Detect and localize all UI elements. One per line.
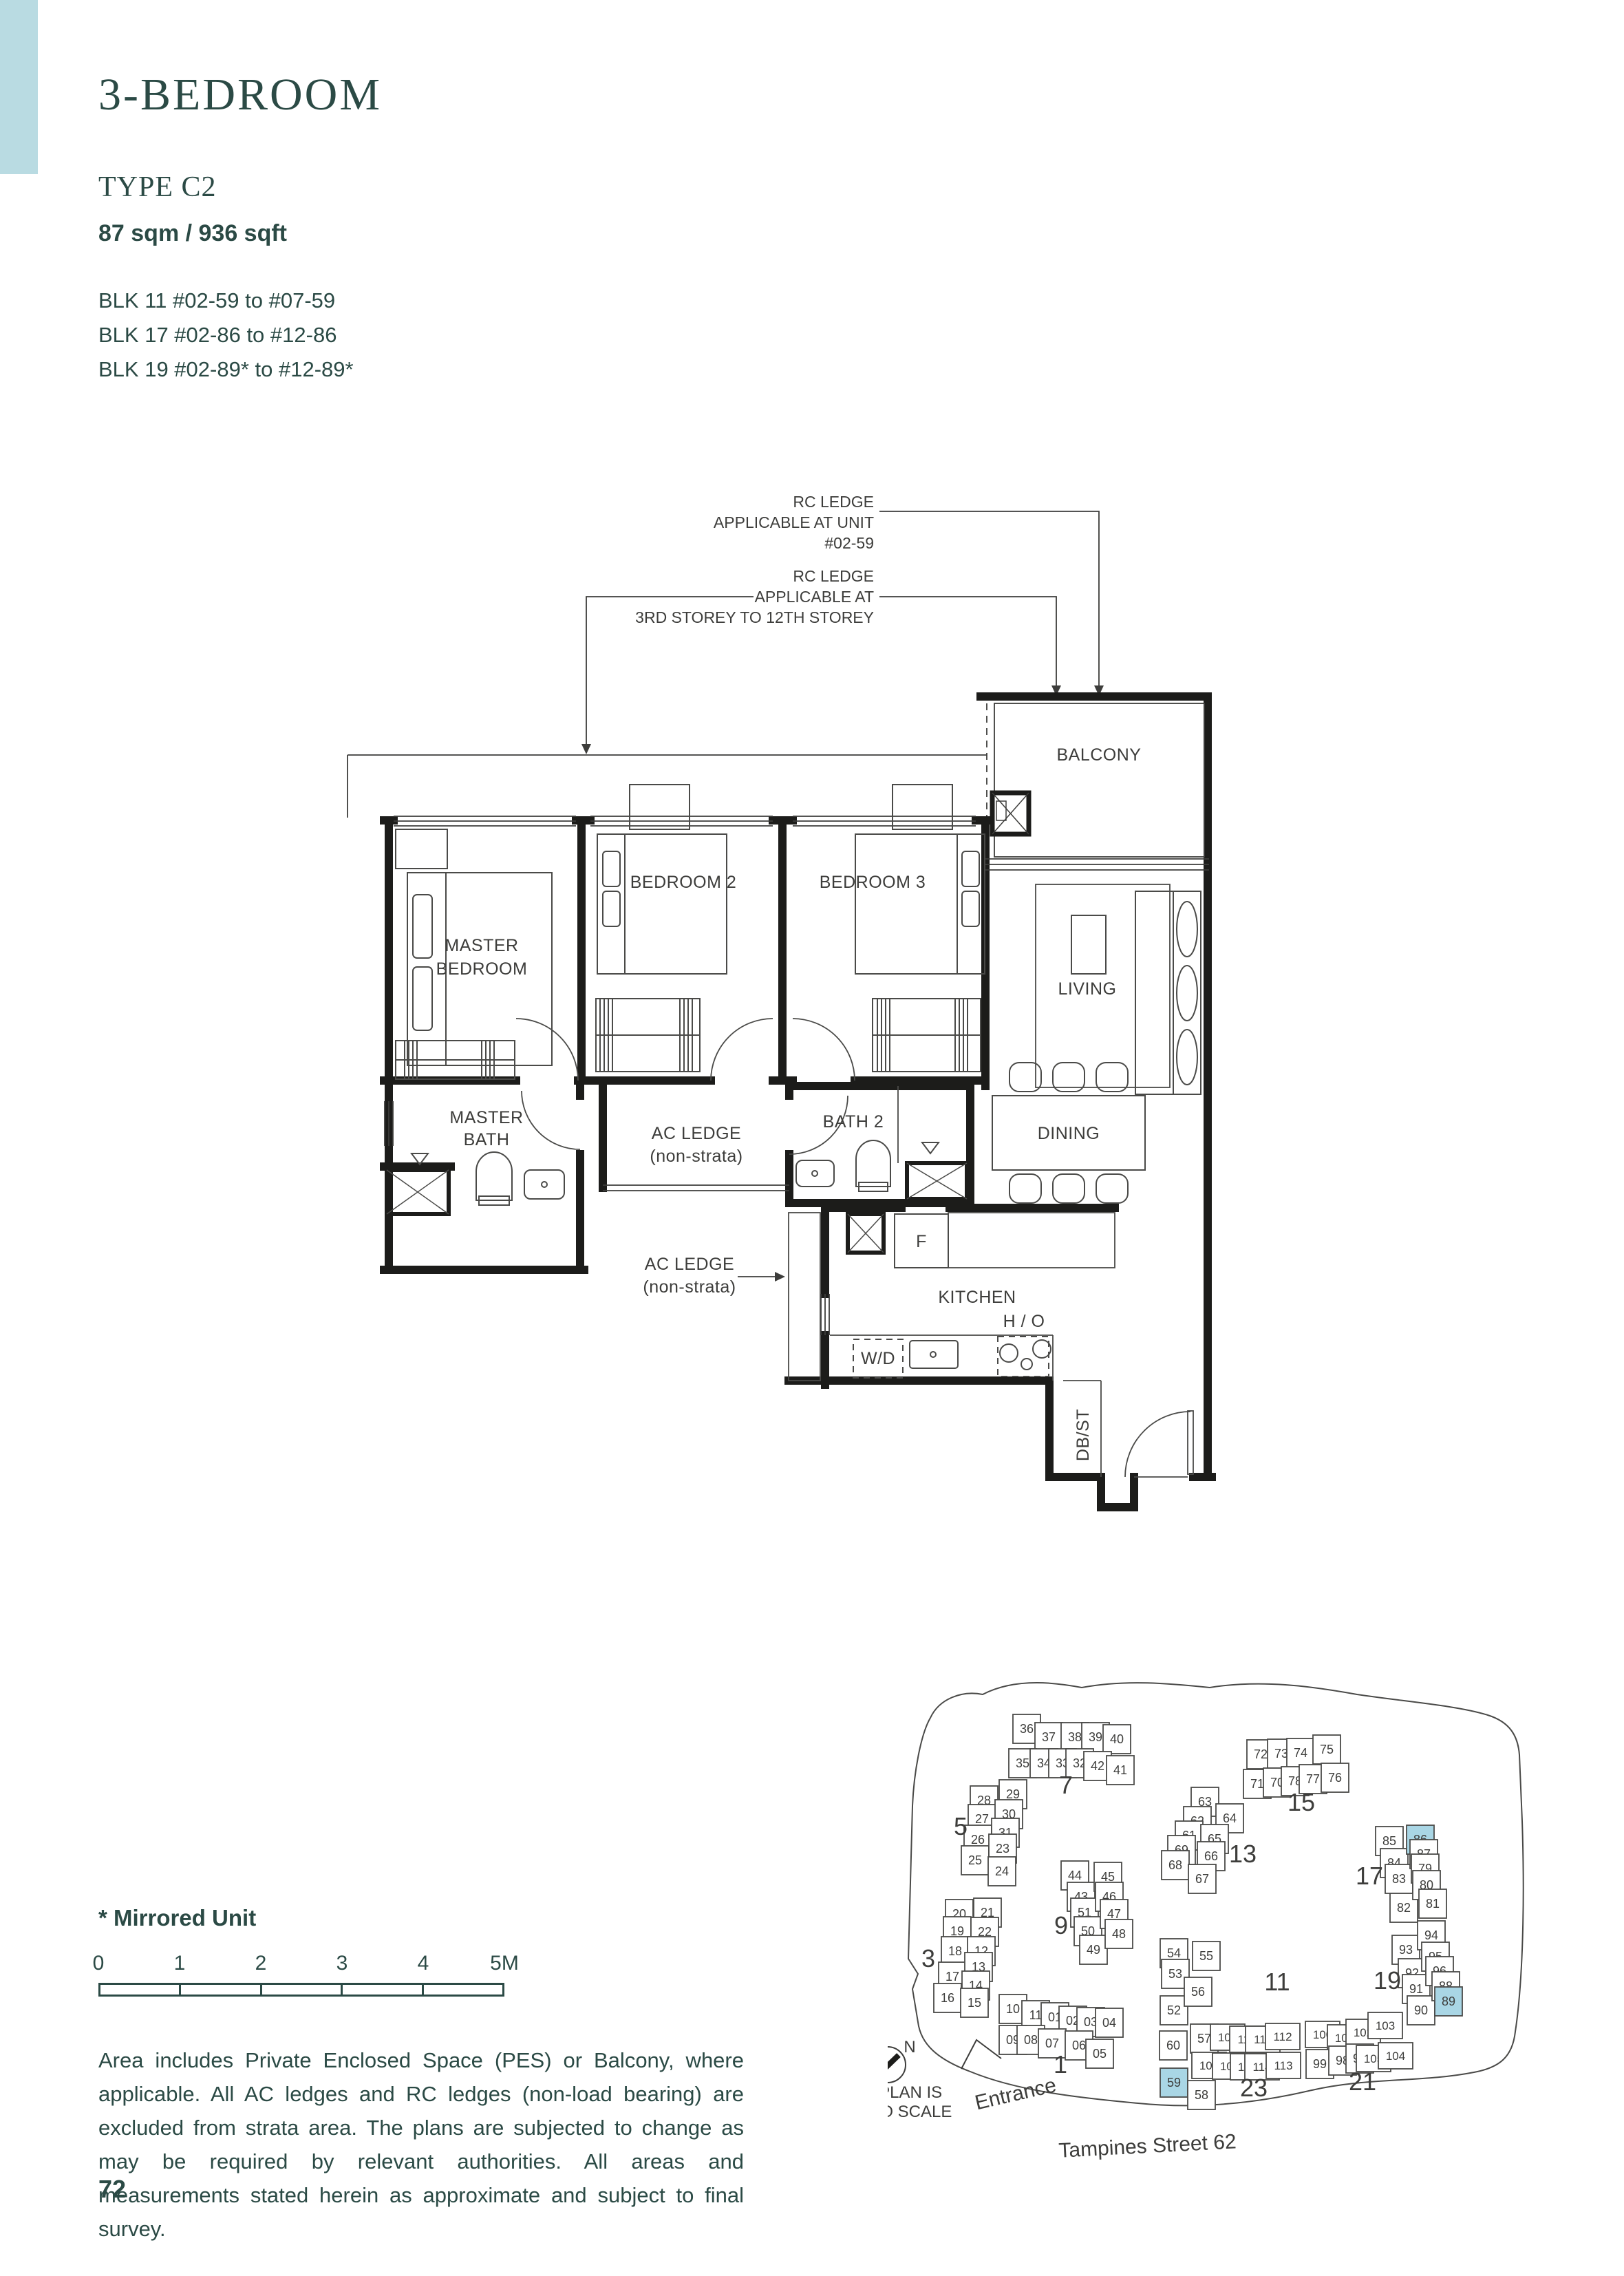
- keyplan-units: 3637383940353433324241772737475717078777…: [921, 1714, 1462, 2109]
- keyplan-unit-number: 82: [1397, 1901, 1411, 1915]
- keyplan-unit-number: 44: [1068, 1869, 1082, 1882]
- keyplan-block-number: 15: [1288, 1788, 1315, 1816]
- keyplan-unit-number: 55: [1199, 1949, 1213, 1963]
- balcony-lines: [984, 703, 1209, 870]
- keyplan-unit-number: 71: [1250, 1777, 1264, 1791]
- rc-ledge-unit-line3: #02-59: [824, 534, 874, 552]
- keyplan-unit-number: 56: [1191, 1985, 1205, 1999]
- keyplan-unit-number: 113: [1274, 2059, 1292, 2072]
- keyplan-note-1: KEY PLAN IS: [888, 2083, 942, 2102]
- keyplan-unit-number: 75: [1320, 1743, 1334, 1756]
- keyplan-unit-number: 59: [1167, 2076, 1181, 2089]
- keyplan-unit-number: 58: [1195, 2088, 1208, 2102]
- keyplan-unit-number: 18: [948, 1944, 962, 1958]
- keyplan-unit-number: 47: [1107, 1907, 1121, 1921]
- scale-tick: 2: [255, 1952, 267, 1975]
- ac-ledge2-label-1: AC LEDGE: [645, 1255, 734, 1274]
- keyplan-unit-number: 53: [1168, 1967, 1182, 1981]
- key-plan: 3637383940353433324241772737475717078777…: [888, 1672, 1535, 2175]
- ac-ledge2-arrow: [738, 1272, 785, 1281]
- keyplan-unit-number: 68: [1168, 1858, 1182, 1872]
- keyplan-unit-number: 39: [1089, 1730, 1102, 1744]
- keyplan-unit-number: 23: [996, 1842, 1009, 1855]
- keyplan-unit-number: 93: [1399, 1943, 1413, 1957]
- keyplan-block-number: 23: [1240, 2074, 1268, 2102]
- keyplan-block-number: 19: [1374, 1966, 1401, 1995]
- disclaimer-text: Area includes Private Enclosed Space (PE…: [98, 2043, 744, 2246]
- keyplan-block-number: 13: [1229, 1840, 1257, 1868]
- scale-bar: [98, 1983, 504, 1997]
- keyplan-unit-number: 85: [1382, 1834, 1396, 1848]
- block-list: BLK 11 #02-59 to #07-59 BLK 17 #02-86 to…: [98, 284, 354, 387]
- bath2-label: BATH 2: [823, 1112, 884, 1131]
- keyplan-unit-number: 52: [1167, 2003, 1181, 2017]
- keyplan-unit-number: 81: [1426, 1897, 1440, 1911]
- keyplan-unit-number: 76: [1328, 1771, 1342, 1785]
- scale-tick: 0: [93, 1952, 105, 1975]
- keyplan-unit-number: 48: [1112, 1927, 1126, 1941]
- keyplan-unit-number: 07: [1045, 2036, 1059, 2050]
- keyplan-unit-number: 41: [1113, 1763, 1127, 1777]
- block-line: BLK 19 #02-89* to #12-89*: [98, 352, 354, 387]
- keyplan-unit-number: 36: [1020, 1722, 1034, 1736]
- rc-ledge-unit-line2: APPLICABLE AT UNIT: [714, 513, 874, 531]
- keyplan-block-number: 17: [1356, 1862, 1383, 1890]
- rc-ledge-storey-line2: APPLICABLE AT: [755, 588, 874, 606]
- keyplan-unit-number: 10: [1006, 2002, 1020, 2016]
- ac-ledge1-label-1: AC LEDGE: [652, 1124, 741, 1143]
- keyplan-unit-number: 94: [1424, 1928, 1438, 1942]
- keyplan-unit-number: 74: [1294, 1746, 1307, 1760]
- page-number: 72: [98, 2175, 126, 2204]
- block-line: BLK 11 #02-59 to #07-59: [98, 284, 354, 318]
- block-line: BLK 17 #02-86 to #12-86: [98, 318, 354, 352]
- keyplan-unit-number: 83: [1392, 1872, 1406, 1886]
- unit-type: TYPE C2: [98, 171, 217, 204]
- brochure-page: 3-BEDROOM TYPE C2 87 sqm / 936 sqft BLK …: [0, 0, 1624, 2276]
- keyplan-unit-number: 77: [1306, 1772, 1320, 1786]
- keyplan-unit-number: 29: [1006, 1787, 1020, 1801]
- keyplan-unit-number: 54: [1167, 1946, 1181, 1960]
- keyplan-unit-number: 06: [1072, 2039, 1086, 2052]
- keyplan-unit-number: 26: [971, 1833, 985, 1847]
- keyplan-block-number: 5: [954, 1812, 968, 1840]
- keyplan-unit-number: 67: [1195, 1872, 1209, 1886]
- keyplan-unit-number: 38: [1068, 1730, 1082, 1744]
- keyplan-unit-number: 24: [995, 1864, 1009, 1878]
- keyplan-unit-number: 40: [1110, 1732, 1124, 1746]
- entrance-label: Entrance: [973, 2074, 1058, 2114]
- keyplan-unit-number: 17: [945, 1970, 959, 1983]
- keyplan-unit-number: 49: [1087, 1943, 1100, 1957]
- keyplan-unit-number: 60: [1166, 2039, 1180, 2052]
- keyplan-unit-number: 66: [1204, 1849, 1218, 1863]
- keyplan-unit-number: 112: [1273, 2030, 1292, 2043]
- rc-ledge-band: [348, 703, 987, 819]
- dining-label: DINING: [1038, 1124, 1100, 1143]
- rc-ledge-storey-line3: 3RD STOREY TO 12TH STOREY: [635, 608, 874, 626]
- keyplan-unit-number: 73: [1274, 1747, 1288, 1761]
- keyplan-unit-number: 99: [1313, 2057, 1327, 2071]
- keyplan-unit-number: 42: [1091, 1759, 1104, 1773]
- keyplan-block-number: 3: [921, 1944, 935, 1972]
- washer-label: W/D: [861, 1349, 895, 1368]
- keyplan-block-number: 21: [1349, 2067, 1376, 2096]
- ac-ledge2-label-2: (non-strata): [643, 1277, 736, 1297]
- scale-tick: 3: [336, 1952, 348, 1975]
- keyplan-block-number: 9: [1054, 1911, 1068, 1939]
- accent-bar: [0, 0, 38, 174]
- balcony-label: BALCONY: [1057, 745, 1142, 765]
- keyplan-unit-number: 89: [1442, 1995, 1455, 2008]
- bedroom3-label: BEDROOM 3: [820, 873, 926, 892]
- scale-tick: 1: [174, 1952, 186, 1975]
- scale-tick: 4: [418, 1952, 429, 1975]
- rc-ledge-unit-line1: RC LEDGE: [793, 493, 874, 511]
- keyplan-unit-number: 72: [1254, 1747, 1268, 1761]
- ac-ledge-edge: [603, 1185, 789, 1191]
- fridge-label: F: [916, 1232, 927, 1251]
- keyplan-block-number: 7: [1059, 1771, 1073, 1799]
- walls: [384, 696, 1212, 1507]
- master-bedroom-label-2: BEDROOM: [436, 959, 528, 979]
- keyplan-unit-number: 05: [1093, 2047, 1107, 2061]
- master-bath-label-2: BATH: [464, 1130, 510, 1149]
- rc-ledge-unit-label: RC LEDGE APPLICABLE AT UNIT #02-59: [714, 493, 874, 552]
- keyplan-unit-number: 37: [1042, 1730, 1056, 1744]
- master-bath-label-1: MASTER: [449, 1108, 523, 1127]
- living-label: LIVING: [1058, 979, 1117, 999]
- kitchen-fittings: [789, 1213, 1193, 1477]
- keyplan-unit-number: 104: [1386, 2050, 1405, 2063]
- keyplan-unit-number: 27: [975, 1812, 989, 1826]
- keyplan-unit-number: 91: [1409, 1982, 1423, 1996]
- keyplan-unit-number: 19: [950, 1924, 964, 1938]
- scale-tick: 5M: [490, 1952, 519, 1975]
- kitchen-label: KITCHEN: [938, 1288, 1016, 1307]
- keyplan-unit-number: 103: [1376, 2019, 1395, 2032]
- keyplan-unit-number: 16: [941, 1991, 954, 2005]
- keyplan-unit-number: 64: [1223, 1811, 1237, 1825]
- page-title: 3-BEDROOM: [98, 69, 382, 121]
- keyplan-unit-number: 90: [1414, 2003, 1428, 2017]
- keyplan-unit-number: 35: [1016, 1756, 1029, 1770]
- unit-area: 87 sqm / 936 sqft: [98, 220, 287, 247]
- rc-ledge-storey-line1: RC LEDGE: [793, 567, 874, 585]
- keyplan-unit-number: 25: [968, 1853, 982, 1867]
- keyplan-note-2: NOT TO SCALE: [888, 2103, 952, 2121]
- floor-plan: RC LEDGE APPLICABLE AT UNIT #02-59 RC LE…: [265, 475, 1232, 1569]
- ac-unit-box: [992, 793, 1029, 834]
- keyplan-block-number: 1: [1054, 2050, 1067, 2078]
- mirrored-unit-note: * Mirrored Unit: [98, 1905, 256, 1931]
- north-label: N: [904, 2038, 915, 2056]
- ac-ledge1-label-2: (non-strata): [650, 1147, 742, 1166]
- bedroom2-label: BEDROOM 2: [630, 873, 737, 892]
- keyplan-block-number: 11: [1264, 1968, 1290, 1996]
- keyplan-unit-number: 15: [968, 1996, 981, 2010]
- street-label: Tampines Street 62: [1058, 2130, 1237, 2162]
- dbst-label: DB/ST: [1073, 1409, 1093, 1461]
- keyplan-unit-number: 45: [1101, 1870, 1115, 1884]
- north-compass-icon: N: [888, 2038, 916, 2083]
- keyplan-unit-number: 57: [1197, 2032, 1211, 2045]
- keyplan-unit-number: 04: [1102, 2016, 1116, 2030]
- master-bedroom-label-1: MASTER: [445, 936, 518, 955]
- keyplan-unit-number: 08: [1024, 2033, 1038, 2047]
- hob-label: H / O: [1003, 1312, 1045, 1331]
- keyplan-unit-number: 11: [1029, 2008, 1043, 2022]
